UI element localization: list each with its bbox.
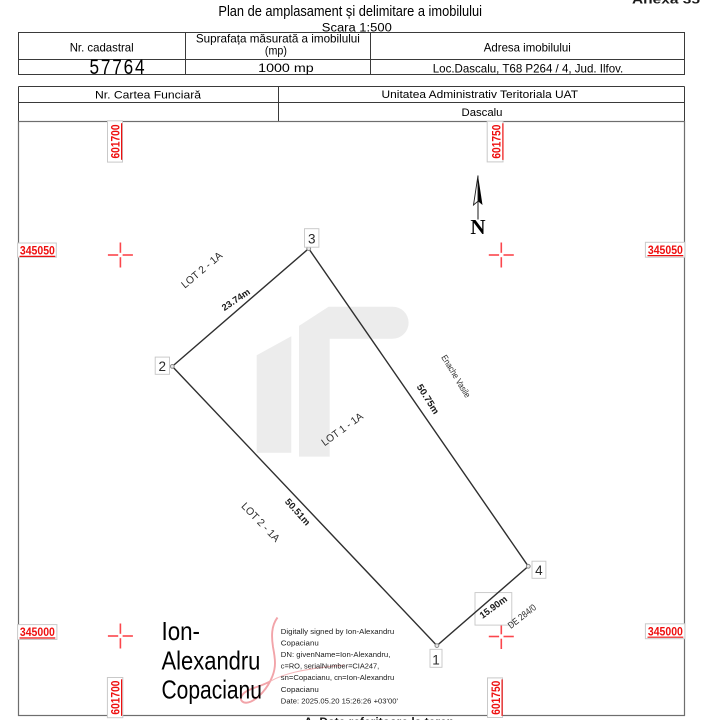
svg-text:4: 4: [535, 563, 543, 578]
svg-text:Ion-: Ion-: [162, 616, 201, 646]
svg-text:1: 1: [432, 653, 440, 668]
svg-text:Copacianu: Copacianu: [281, 638, 319, 647]
svg-text:sn=Copacianu, cn=Ion-Alexandru: sn=Copacianu, cn=Ion-Alexandru: [281, 673, 394, 682]
svg-text:3: 3: [308, 232, 316, 247]
svg-text:Anexa 35: Anexa 35: [632, 0, 700, 7]
svg-text:601750: 601750: [491, 681, 503, 715]
svg-text:N: N: [470, 215, 485, 239]
svg-text:2: 2: [159, 359, 167, 374]
svg-text:Loc.Dascalu, T68 P264 / 4, Ju: Loc.Dascalu, T68 P264 / 4, Jud. Ilfov.: [433, 62, 624, 75]
svg-text:Date: 2025.05.20 15:26:26 +03': Date: 2025.05.20 15:26:26 +03'00': [281, 696, 399, 705]
svg-text:DN: givenName=Ion-Alexandru,: DN: givenName=Ion-Alexandru,: [281, 650, 391, 659]
svg-text:Copacianu: Copacianu: [281, 685, 319, 694]
svg-text:601700: 601700: [110, 125, 122, 159]
svg-text:601750: 601750: [492, 125, 504, 159]
svg-text:c=RO, serialNumber=CIA247,: c=RO, serialNumber=CIA247,: [281, 662, 379, 671]
svg-text:Digitally signed by Ion-Alexan: Digitally signed by Ion-Alexandru: [281, 627, 394, 636]
svg-text:345050: 345050: [648, 245, 683, 257]
svg-text:Unitatea Administrativ Teritor: Unitatea Administrativ Teritoriala UAT: [382, 89, 579, 101]
svg-text:57764: 57764: [89, 56, 146, 79]
svg-text:Suprafața măsurată a imobilulu: Suprafața măsurată a imobilului: [196, 32, 360, 45]
svg-text:(mp): (mp): [265, 45, 287, 58]
svg-text:1000 mp: 1000 mp: [258, 62, 314, 75]
svg-text:Plan de amplasament și delimit: Plan de amplasament și delimitare a imob…: [218, 3, 482, 20]
svg-text:Nr. Cartea Funciară: Nr. Cartea Funciară: [95, 90, 202, 102]
svg-text:Alexandru: Alexandru: [162, 646, 261, 676]
svg-text:Adresa imobilului: Adresa imobilului: [484, 41, 571, 54]
svg-text:Nr. cadastral: Nr. cadastral: [70, 41, 134, 54]
svg-text:601700: 601700: [110, 681, 122, 715]
svg-text:Copacianu: Copacianu: [162, 675, 262, 705]
svg-text:Dascalu: Dascalu: [462, 107, 503, 119]
